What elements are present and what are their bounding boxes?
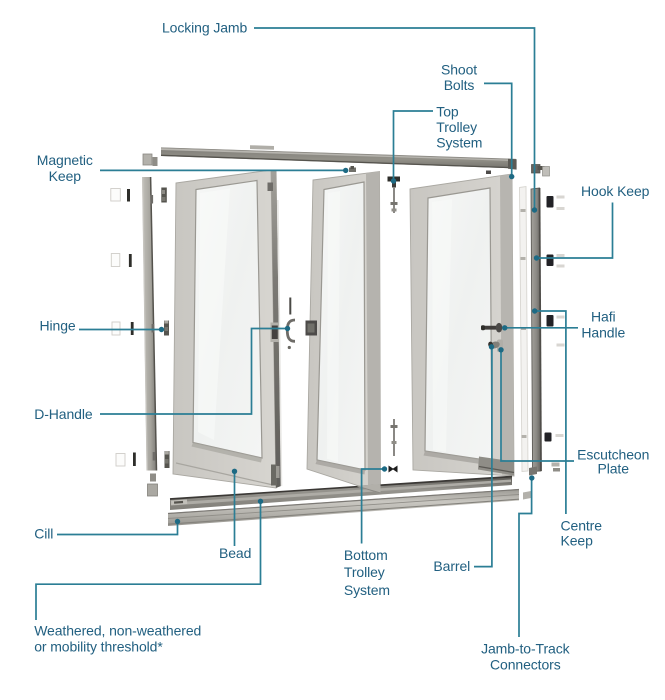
svg-text:Magnetic: Magnetic [37, 152, 93, 168]
svg-text:Hinge: Hinge [40, 318, 76, 334]
svg-text:Plate: Plate [597, 461, 629, 477]
svg-text:Centre: Centre [561, 518, 603, 534]
svg-text:Cill: Cill [34, 526, 53, 542]
svg-text:Hafi: Hafi [591, 309, 616, 325]
svg-text:Bolts: Bolts [444, 77, 475, 93]
svg-text:Bead: Bead [219, 545, 251, 561]
svg-text:System: System [436, 135, 482, 151]
svg-text:Hook Keep: Hook Keep [581, 183, 650, 199]
svg-text:Handle: Handle [581, 324, 625, 340]
svg-text:Weathered, non-weathered: Weathered, non-weathered [34, 623, 201, 639]
svg-text:Connectors: Connectors [490, 657, 561, 673]
svg-text:Bottom: Bottom [344, 547, 388, 563]
svg-text:Jamb-to-Track: Jamb-to-Track [481, 640, 571, 656]
svg-text:System: System [344, 582, 390, 598]
svg-text:Locking Jamb: Locking Jamb [162, 20, 247, 36]
svg-text:or mobility threshold*: or mobility threshold* [34, 639, 163, 655]
svg-text:Trolley: Trolley [344, 564, 385, 580]
svg-text:Trolley: Trolley [436, 119, 477, 135]
svg-text:D-Handle: D-Handle [34, 406, 93, 422]
svg-text:Top: Top [436, 104, 459, 120]
svg-text:Keep: Keep [561, 533, 594, 549]
svg-text:Shoot: Shoot [441, 62, 477, 78]
svg-text:Barrel: Barrel [433, 558, 470, 574]
svg-text:Keep: Keep [49, 168, 82, 184]
